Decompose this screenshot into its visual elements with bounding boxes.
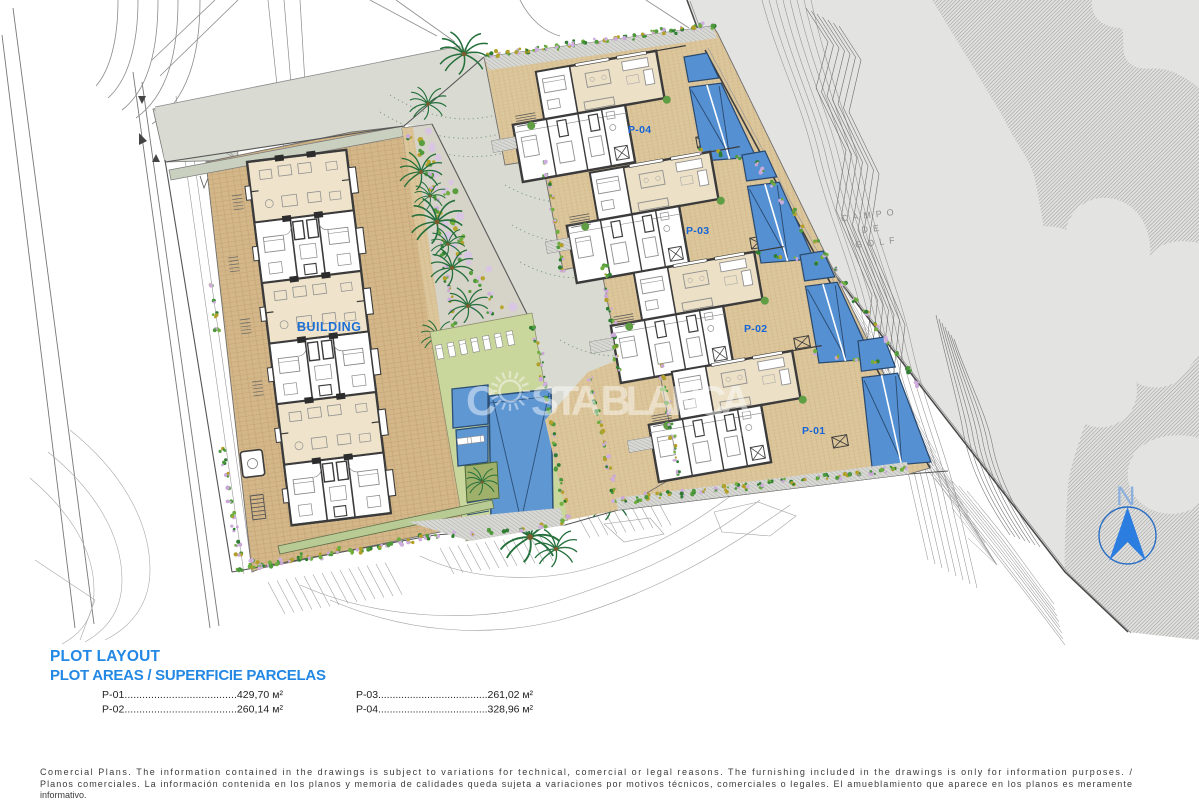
svg-text:STA BLANCA: STA BLANCA [531,377,751,424]
svg-text:informativo.: informativo. [40,790,87,800]
svg-text:P-03: P-03 [686,225,709,237]
svg-text:P-04..........................: P-04....................................… [356,704,534,716]
svg-text:BUILDING: BUILDING [297,320,361,334]
svg-text:Planos comerciales. La informa: Planos comerciales. La información conte… [40,779,1132,789]
svg-text:i d e a l p r o p e r t i e: i d e a l p r o p e r t i e s [660,428,765,439]
svg-text:P-02..........................: P-02....................................… [102,704,284,716]
svg-text:P-02: P-02 [744,323,767,335]
svg-text:PLOT AREAS / SUPERFICIE PARCEL: PLOT AREAS / SUPERFICIE PARCELAS [50,667,326,684]
svg-text:P-01..........................: P-01....................................… [102,689,284,701]
svg-text:P-01: P-01 [802,425,825,437]
svg-text:P-04: P-04 [628,124,651,136]
svg-text:N: N [1116,481,1136,511]
svg-text:P-03..........................: P-03....................................… [356,689,534,701]
svg-text:PLOT LAYOUT: PLOT LAYOUT [50,648,160,665]
